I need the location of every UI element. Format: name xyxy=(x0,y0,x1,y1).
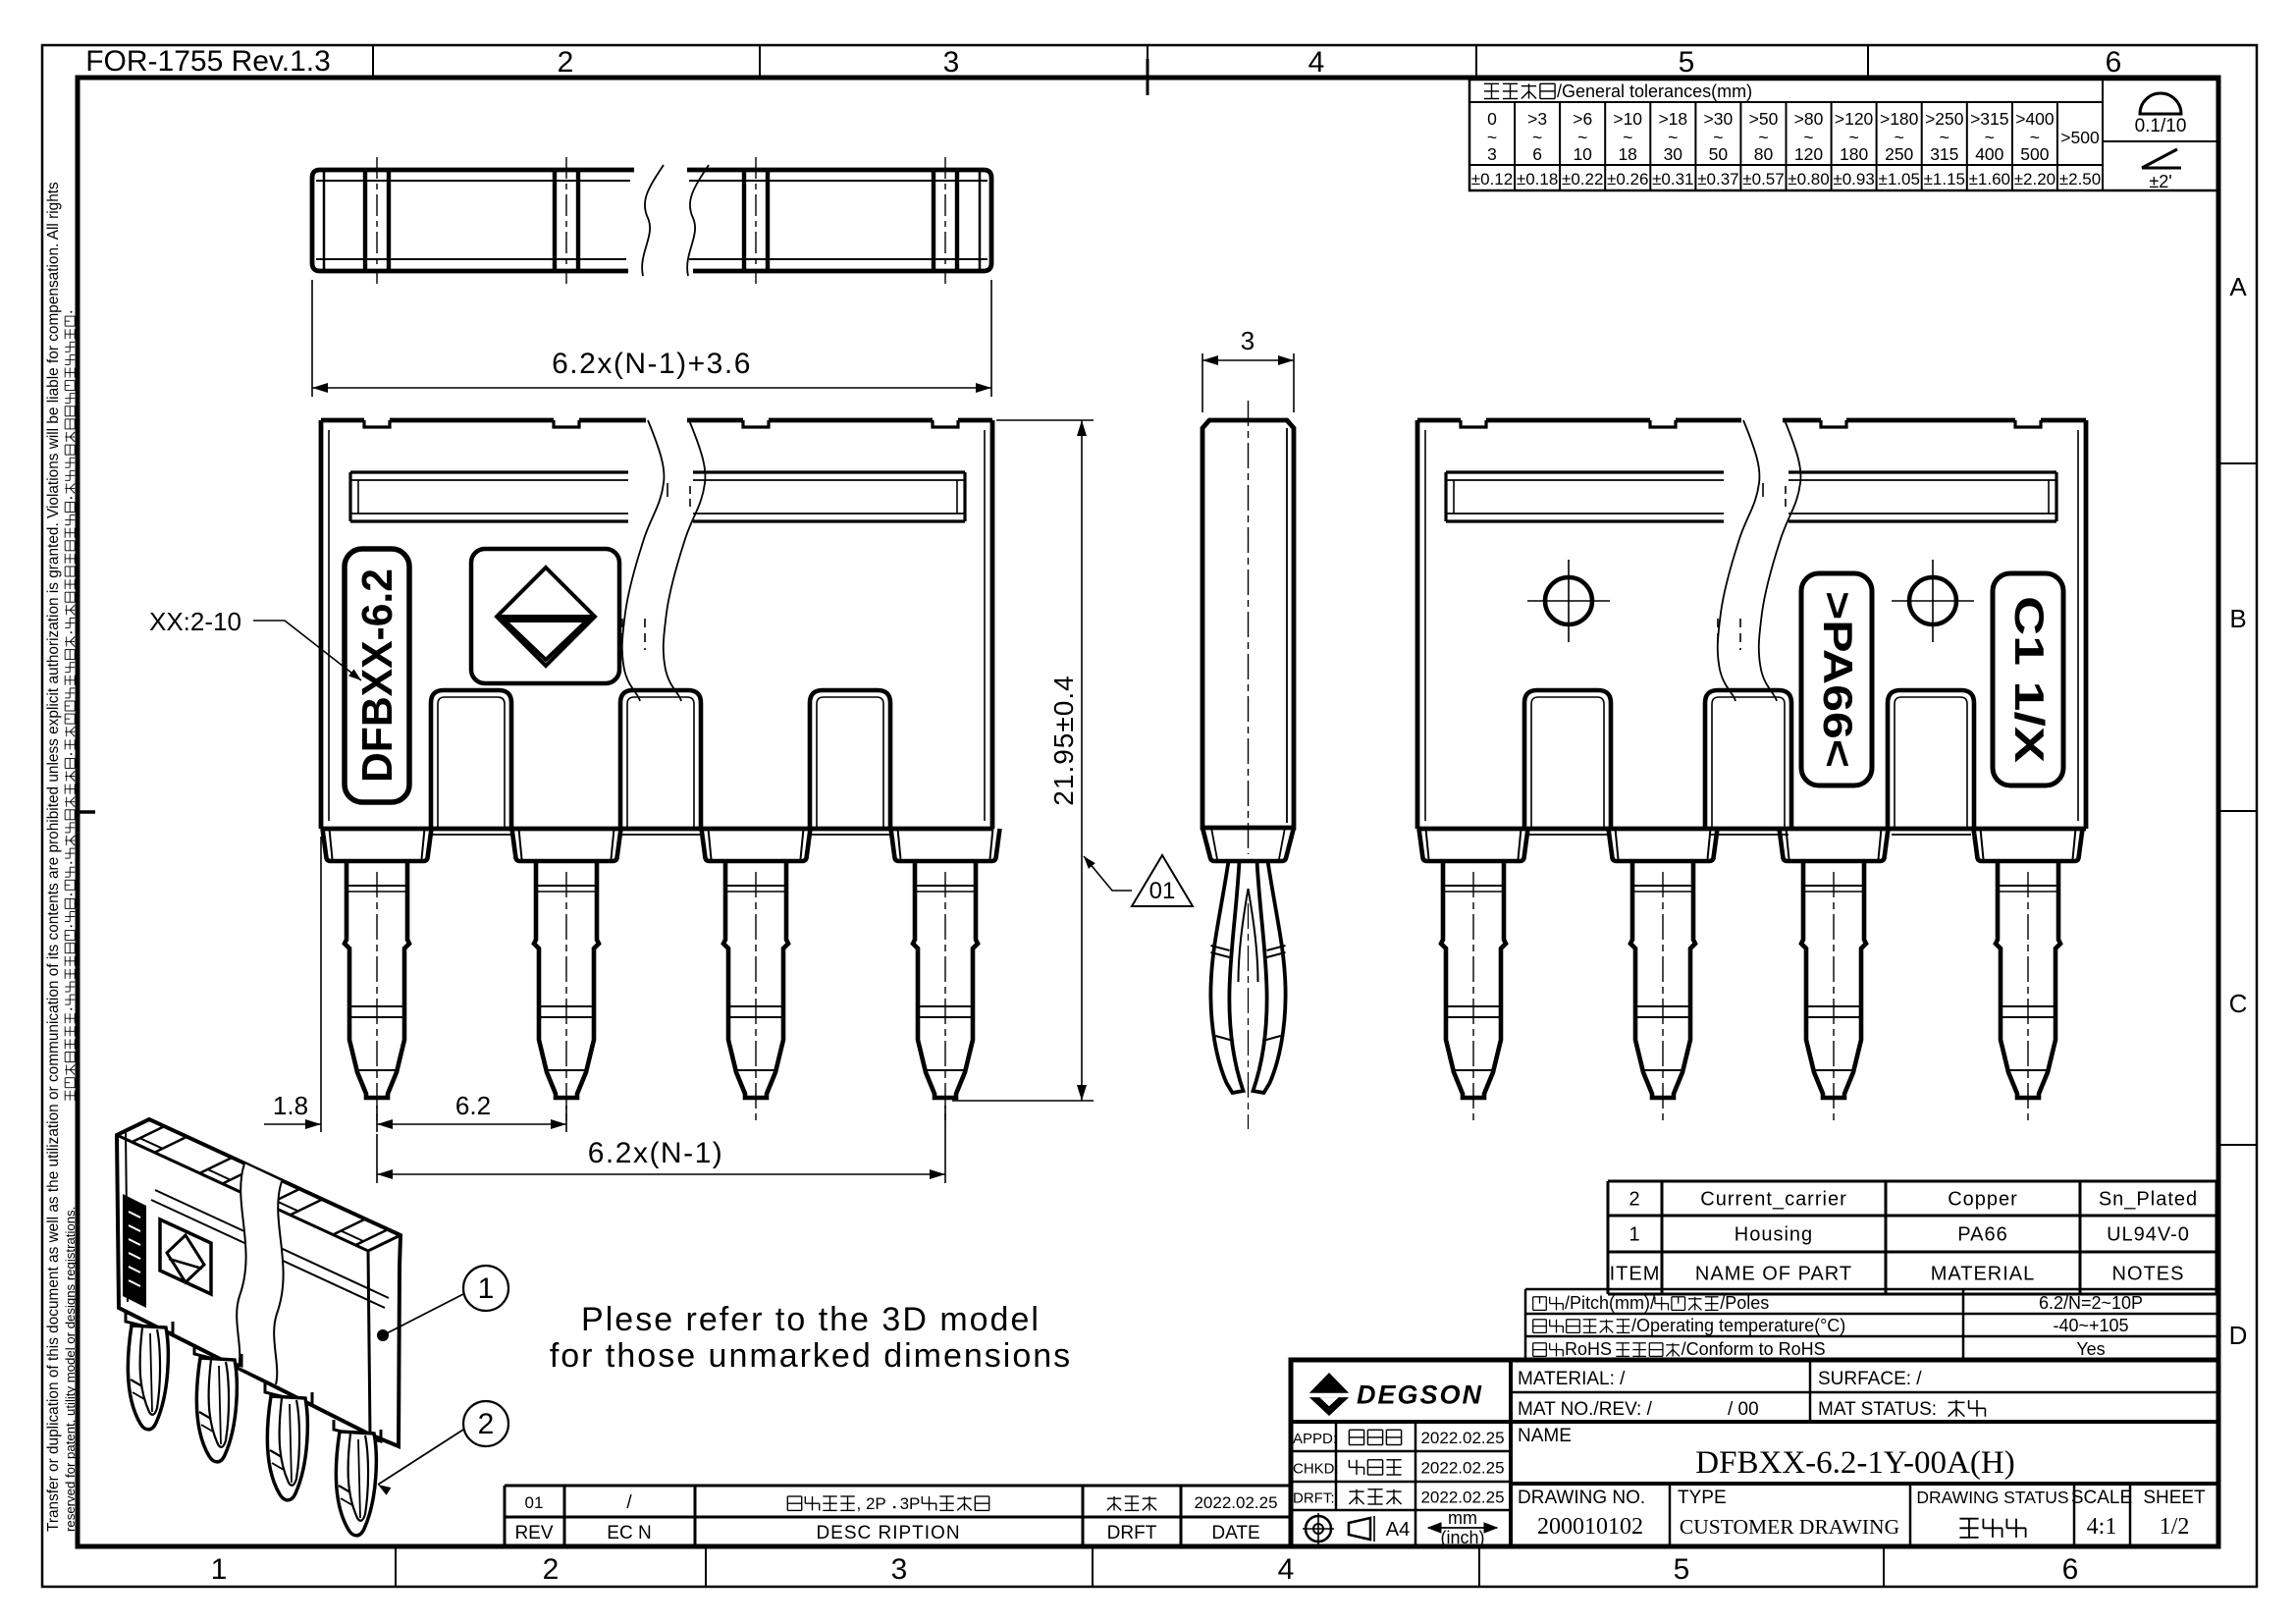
svg-text:>180: >180 xyxy=(1880,109,1919,129)
svg-text:SHEET: SHEET xyxy=(2143,1488,2206,1508)
svg-text:4: 4 xyxy=(1308,46,1325,79)
svg-text:MAT NO./REV: /: MAT NO./REV: / xyxy=(1518,1399,1653,1420)
svg-text:Plese refer to the 3D mod: Plese refer to the 3D model xyxy=(581,1301,1041,1338)
svg-text:, 2P: , 2P xyxy=(857,1494,886,1513)
svg-text:5: 5 xyxy=(1679,46,1695,79)
svg-text:reserved for patent, utilit: reserved for patent, utility model or de… xyxy=(63,1207,78,1532)
svg-text:6.2/N=2~10P: 6.2/N=2~10P xyxy=(2039,1293,2143,1313)
svg-text:500: 500 xyxy=(2020,144,2049,164)
svg-text:DATE: DATE xyxy=(1211,1523,1259,1543)
svg-text:>10: >10 xyxy=(1613,109,1642,129)
svg-text:0.1/10: 0.1/10 xyxy=(2135,116,2187,136)
svg-text:±1.05: ±1.05 xyxy=(1878,170,1919,189)
svg-text:±0.80: ±0.80 xyxy=(1788,170,1829,189)
svg-text:±2.50: ±2.50 xyxy=(2059,170,2101,189)
svg-text:A4: A4 xyxy=(1386,1519,1410,1541)
svg-text:2: 2 xyxy=(478,1408,495,1440)
svg-text:±2.20: ±2.20 xyxy=(2014,170,2056,189)
svg-text:>315: >315 xyxy=(1970,109,2008,129)
svg-text:Transfer or duplication of: Transfer or duplication of this document… xyxy=(45,182,62,1532)
svg-text:/Conform to RoHS: /Conform to RoHS xyxy=(1682,1339,1826,1359)
svg-text:2: 2 xyxy=(543,1553,560,1586)
svg-text:>6: >6 xyxy=(1573,109,1592,129)
svg-text:RoHS: RoHS xyxy=(1565,1339,1612,1359)
svg-text:DFBXX-6.2: DFBXX-6.2 xyxy=(353,568,401,783)
svg-text:DEGSON: DEGSON xyxy=(1357,1380,1483,1410)
svg-text:Yes: Yes xyxy=(2076,1339,2105,1359)
svg-text:2022.02.25: 2022.02.25 xyxy=(1420,1459,1504,1478)
svg-text:200010102: 200010102 xyxy=(1537,1514,1643,1540)
svg-text:1: 1 xyxy=(478,1272,495,1305)
svg-text:Housing: Housing xyxy=(1735,1224,1813,1246)
svg-text:FOR-1755 Rev.1.3: FOR-1755 Rev.1.3 xyxy=(85,45,331,78)
svg-text:>30: >30 xyxy=(1704,109,1734,129)
svg-text:for those unmarked dimensio: for those unmarked dimensions xyxy=(550,1337,1072,1375)
svg-text:10: 10 xyxy=(1573,144,1592,164)
svg-text:PA66: PA66 xyxy=(1957,1224,2007,1246)
svg-text:mm: mm xyxy=(1448,1508,1477,1528)
svg-text:>400: >400 xyxy=(2015,109,2055,129)
svg-text:TYPE: TYPE xyxy=(1678,1488,1727,1508)
svg-text:C: C xyxy=(2229,989,2248,1018)
svg-text:Sn_Plated: Sn_Plated xyxy=(2099,1189,2198,1211)
svg-text:2: 2 xyxy=(558,46,574,79)
svg-text:2022.02.25: 2022.02.25 xyxy=(1420,1429,1504,1447)
svg-text:APPD:: APPD: xyxy=(1293,1431,1337,1447)
svg-text:SURFACE: /: SURFACE: / xyxy=(1818,1369,1922,1389)
svg-text:±2': ±2' xyxy=(2149,172,2171,191)
svg-text:REV: REV xyxy=(514,1523,553,1543)
svg-text:XX:2-10: XX:2-10 xyxy=(149,607,241,636)
svg-text:±0.37: ±0.37 xyxy=(1697,170,1738,189)
svg-text:DRAWING STATUS: DRAWING STATUS xyxy=(1916,1488,2068,1507)
svg-text:±0.26: ±0.26 xyxy=(1607,170,1648,189)
svg-text:MAT STATUS:: MAT STATUS: xyxy=(1818,1399,1937,1420)
svg-text:Copper: Copper xyxy=(1948,1189,2018,1211)
svg-text:±0.18: ±0.18 xyxy=(1517,170,1558,189)
svg-text:6: 6 xyxy=(2106,46,2122,79)
svg-text:3P: 3P xyxy=(900,1494,921,1513)
svg-text:SCALE: SCALE xyxy=(2071,1488,2132,1508)
svg-text:±0.57: ±0.57 xyxy=(1742,170,1784,189)
svg-text:/General tolerances(mm): /General tolerances(mm) xyxy=(1557,81,1752,101)
svg-text:6.2x(N-1)+3.6: 6.2x(N-1)+3.6 xyxy=(552,348,752,380)
svg-text:DRFT: DRFT xyxy=(1107,1523,1157,1543)
svg-text:0: 0 xyxy=(1487,109,1497,129)
svg-text:B: B xyxy=(2229,604,2246,633)
svg-text:180: 180 xyxy=(1840,144,1868,164)
svg-text:18: 18 xyxy=(1618,144,1636,164)
svg-text:5: 5 xyxy=(1674,1553,1690,1586)
svg-text:2: 2 xyxy=(1629,1189,1640,1211)
svg-text:NAME: NAME xyxy=(1518,1426,1572,1446)
svg-text:/Pitch(mm)/: /Pitch(mm)/ xyxy=(1565,1293,1655,1313)
svg-text:MATERIAL: /: MATERIAL: / xyxy=(1518,1369,1626,1389)
svg-text:>PA66<: >PA66< xyxy=(1815,591,1861,768)
svg-text:/: / xyxy=(626,1492,632,1513)
svg-text:EC N: EC N xyxy=(607,1523,651,1543)
svg-text:±0.93: ±0.93 xyxy=(1833,170,1874,189)
svg-text:(inch): (inch) xyxy=(1440,1528,1484,1547)
svg-text:±0.31: ±0.31 xyxy=(1652,170,1693,189)
svg-text:/Operating temperature(°C): /Operating temperature(°C) xyxy=(1631,1316,1845,1335)
svg-text:315: 315 xyxy=(1930,144,1958,164)
svg-text:/Poles: /Poles xyxy=(1720,1293,1769,1313)
svg-text:250: 250 xyxy=(1885,144,1913,164)
svg-text:CUSTOMER DRAWING: CUSTOMER DRAWING xyxy=(1680,1515,1899,1539)
svg-text:01: 01 xyxy=(525,1493,544,1512)
svg-text:ITEM: ITEM xyxy=(1610,1264,1661,1285)
svg-text:400: 400 xyxy=(1975,144,2003,164)
svg-text:4:1: 4:1 xyxy=(2087,1514,2117,1540)
svg-text:3: 3 xyxy=(943,46,960,79)
svg-text:3: 3 xyxy=(1241,326,1255,355)
svg-text:NAME OF PART: NAME OF PART xyxy=(1695,1264,1852,1285)
svg-text:>80: >80 xyxy=(1794,109,1824,129)
svg-text:DESC RIPTION: DESC RIPTION xyxy=(816,1523,960,1543)
svg-text:6: 6 xyxy=(2062,1553,2079,1586)
svg-text:30: 30 xyxy=(1664,144,1683,164)
svg-text:CHKD:: CHKD: xyxy=(1293,1461,1339,1478)
svg-text:±0.12: ±0.12 xyxy=(1471,170,1513,189)
svg-text:3: 3 xyxy=(891,1553,908,1586)
svg-text:D: D xyxy=(2229,1321,2248,1350)
svg-text:>3: >3 xyxy=(1527,109,1547,129)
svg-text:4: 4 xyxy=(1278,1553,1295,1586)
svg-text:6.2: 6.2 xyxy=(455,1091,491,1120)
svg-text:-40~+105: -40~+105 xyxy=(2053,1316,2128,1335)
svg-text:2022.02.25: 2022.02.25 xyxy=(1194,1493,1277,1512)
svg-text:NOTES: NOTES xyxy=(2112,1264,2185,1285)
svg-text:>500: >500 xyxy=(2060,128,2100,147)
svg-text:1.8: 1.8 xyxy=(273,1091,308,1120)
svg-text:DRAWING NO.: DRAWING NO. xyxy=(1518,1488,1645,1508)
svg-text:2022.02.25: 2022.02.25 xyxy=(1420,1489,1504,1507)
svg-text:C1 1/X: C1 1/X xyxy=(2006,596,2053,763)
svg-text:50: 50 xyxy=(1709,144,1729,164)
svg-text:>250: >250 xyxy=(1925,109,1964,129)
svg-text:21.95±0.4: 21.95±0.4 xyxy=(1048,675,1079,805)
svg-text:1: 1 xyxy=(1629,1224,1640,1246)
svg-text:Current_carrier: Current_carrier xyxy=(1700,1189,1846,1211)
svg-text:MATERIAL: MATERIAL xyxy=(1931,1264,2036,1285)
svg-text:±1.60: ±1.60 xyxy=(1969,170,2010,189)
svg-text:A: A xyxy=(2229,272,2247,301)
svg-text:6.2x(N-1): 6.2x(N-1) xyxy=(588,1137,724,1169)
svg-text:/ 00: / 00 xyxy=(1728,1399,1759,1420)
svg-text:±1.15: ±1.15 xyxy=(1924,170,1965,189)
svg-text:1/2: 1/2 xyxy=(2160,1514,2190,1540)
svg-text:>18: >18 xyxy=(1658,109,1687,129)
svg-text:±0.22: ±0.22 xyxy=(1562,170,1603,189)
svg-text:80: 80 xyxy=(1754,144,1774,164)
svg-text:01: 01 xyxy=(1149,878,1176,904)
svg-text:>120: >120 xyxy=(1835,109,1874,129)
svg-text:1: 1 xyxy=(211,1553,228,1586)
svg-text:120: 120 xyxy=(1794,144,1823,164)
svg-text:>50: >50 xyxy=(1749,109,1779,129)
svg-text:3: 3 xyxy=(1487,144,1497,164)
svg-text:6: 6 xyxy=(1532,144,1542,164)
svg-text:UL94V-0: UL94V-0 xyxy=(2107,1224,2190,1246)
svg-text:DFBXX-6.2-1Y-00A(H): DFBXX-6.2-1Y-00A(H) xyxy=(1695,1445,2014,1481)
svg-text:DRFT:: DRFT: xyxy=(1293,1490,1335,1507)
